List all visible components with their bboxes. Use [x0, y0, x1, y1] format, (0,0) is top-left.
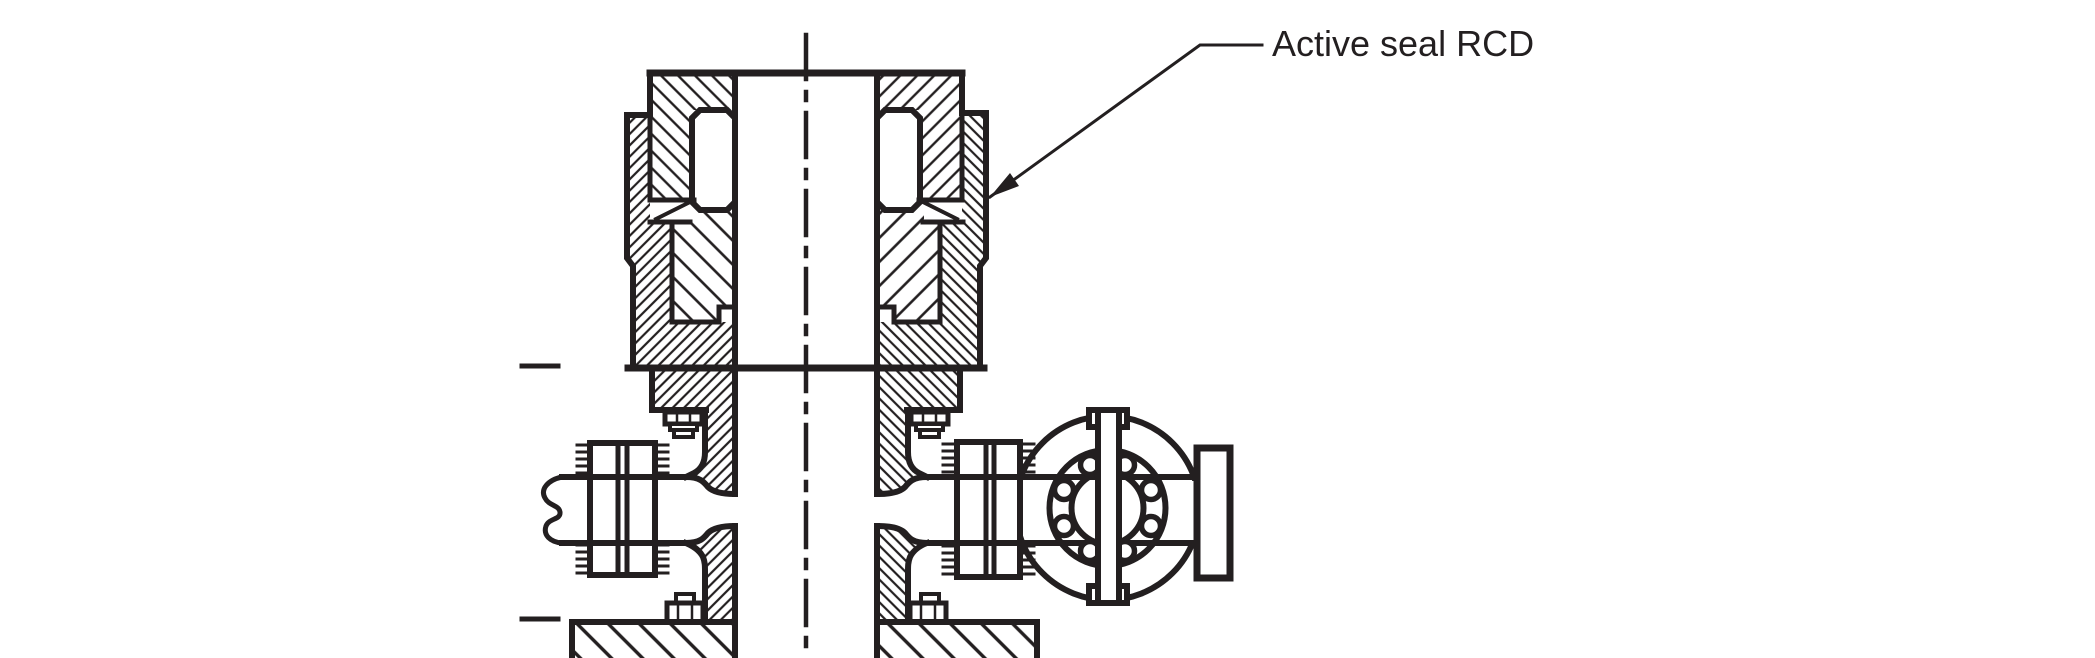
- arrowhead: [990, 173, 1019, 197]
- annotation-label: Active seal RCD: [1272, 23, 1534, 64]
- pipe-break-symbol: [544, 477, 562, 543]
- right-outlet: [927, 410, 1230, 603]
- annotation-leader: Active seal RCD: [990, 23, 1534, 197]
- rcd-cross-section-diagram: Active seal RCD: [0, 0, 2095, 658]
- datum-tick-marks: [522, 366, 558, 619]
- technical-drawing-canvas: Active seal RCD: [0, 0, 2095, 658]
- companion-flange-plate: [1197, 448, 1230, 578]
- left-outlet: [544, 443, 686, 575]
